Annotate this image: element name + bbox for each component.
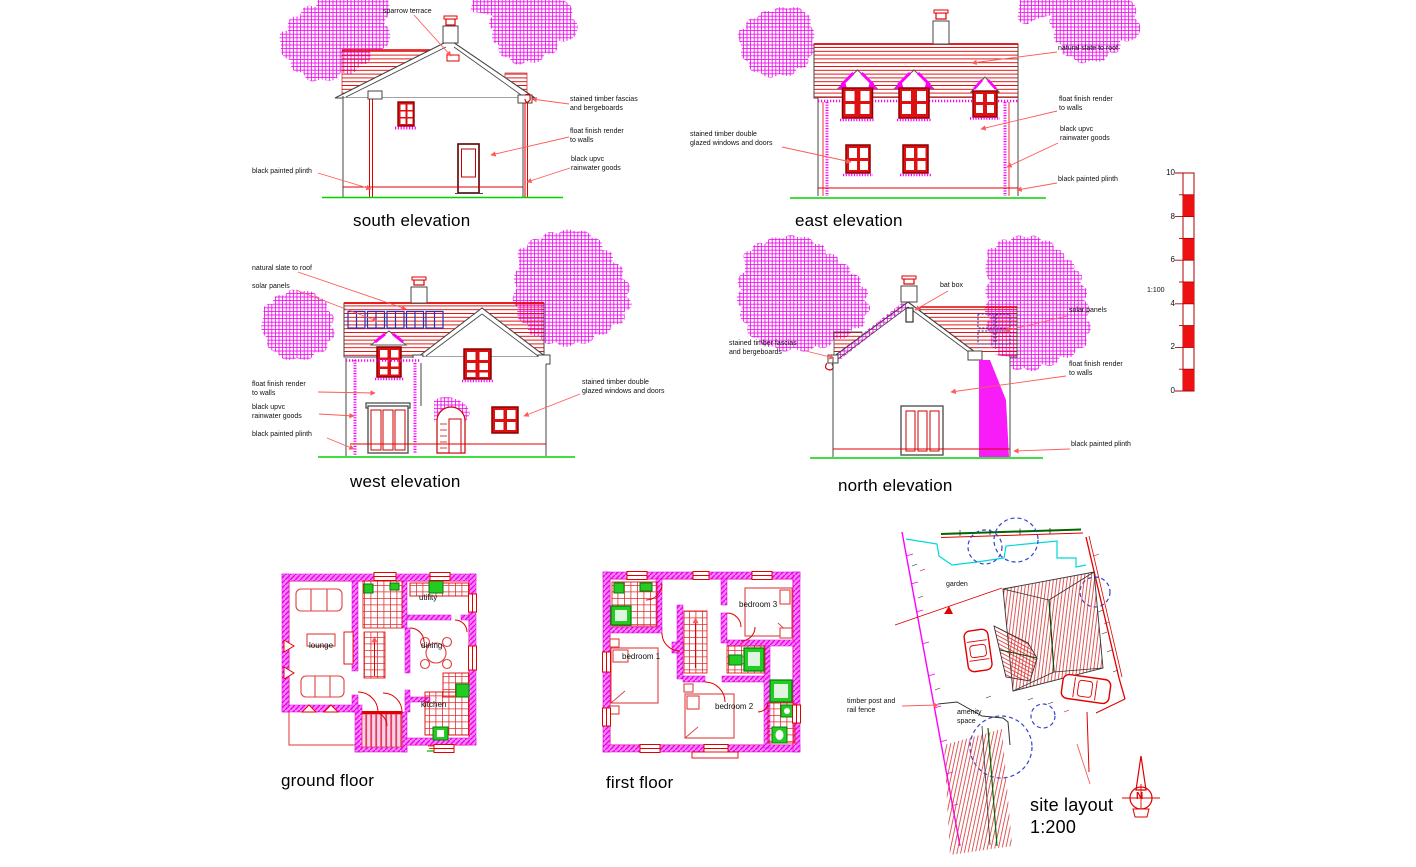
door [901,406,943,455]
south-elevation-drawing [280,0,578,198]
scale-tick-6: 6 [1157,255,1175,264]
door [455,144,483,194]
label-plinth: black painted plinth [1058,176,1118,185]
label-line: stained timber double [582,379,665,388]
basin [729,655,742,665]
wc-toilet [364,584,373,593]
label-line: float finish render [570,128,624,137]
room-label-bedroom2: bedroom 2 [715,702,753,712]
label-line: to walls [1069,370,1123,379]
label-line: rainwater goods [1060,135,1110,144]
label-line: black upvc [1060,126,1110,135]
label-sparrow-terrace: sparrow terrace [383,8,432,17]
scale-tick-0: 0 [1157,386,1175,395]
label-garden: garden [946,581,968,590]
label-line: float finish render [1059,96,1113,105]
ground-floor-title: ground floor [281,771,374,791]
label-rainwater: black upvc rainwater goods [571,156,621,174]
label-line: rail fence [847,707,895,716]
bat-box [906,308,913,322]
south-elevation-title: south elevation [353,211,470,231]
site-layout-drawing [895,518,1160,855]
architectural-drawing-sheet: sparrow terrace stained timber fascias a… [0,0,1416,867]
scale-tick-2: 2 [1157,342,1175,351]
west-elevation-title: west elevation [350,472,461,492]
north-arrow [1122,756,1160,817]
label-rainwater: black upvc rainwater goods [1060,126,1110,144]
label-render: float finish render to walls [252,381,306,399]
label-timber-fence: timber post and rail fence [847,698,895,716]
porch [362,714,402,747]
label-fascias: stained timber fascias and bergeboards [570,96,638,114]
window [843,145,873,175]
label-fascias: stained timber fascias and bergeboards [729,340,797,358]
window [462,349,493,381]
label-render: float finish render to walls [1059,96,1113,114]
label-line: to walls [252,390,306,399]
label-line: space [957,718,982,727]
tree-hatch [738,7,815,77]
scale-tick-4: 4 [1157,299,1175,308]
label-slate: natural slate to roof [1058,45,1118,54]
washer [429,581,443,593]
scale-bar [1175,173,1194,391]
label-line: to walls [570,137,624,146]
east-elevation-title: east elevation [795,211,903,231]
label-solar: solar panels [252,283,290,292]
amenity-hatch [944,729,1012,855]
label-line: rainwater goods [252,413,302,422]
label-line: amenity [957,709,982,718]
label-bat-box: bat box [940,282,963,291]
label-line: and bergeboards [570,105,638,114]
label-plinth: black painted plinth [252,431,312,440]
scale-tick-8: 8 [1157,212,1175,221]
site-layout-title: site layout [1030,795,1113,816]
wc-basin [390,583,399,590]
window [375,347,404,379]
label-line: black upvc [252,404,302,413]
ground-floor-plan [282,573,477,753]
toilet [614,583,624,593]
tree-hatch [470,0,578,65]
room-label-bedroom3: bedroom 3 [739,600,777,610]
label-windows: stained timber double glazed windows and… [582,379,665,397]
label-line: timber post and [847,698,895,707]
label-plinth: black painted plinth [252,168,312,177]
window [900,145,931,175]
label-line: stained timber double [690,131,773,140]
scale-ratio: 1:100 [1147,287,1165,294]
car [1061,674,1112,704]
window [395,102,417,128]
car [963,629,992,673]
cooker [456,684,469,697]
french-doors [366,403,410,453]
room-label-kitchen: kitchen [421,700,446,710]
window [492,407,518,433]
label-solar: solar panels [1069,307,1107,316]
north-arrow-letter: N [1136,791,1143,802]
room-label-lounge: lounge [309,641,333,651]
label-line: rainwater goods [571,165,621,174]
label-line: glazed windows and doors [690,140,773,149]
label-windows: stained timber double glazed windows and… [690,131,773,149]
north-elevation-title: north elevation [838,476,953,496]
first-floor-title: first floor [606,773,673,793]
scale-tick-10: 10 [1157,168,1175,177]
label-line: stained timber fascias [729,340,797,349]
services-line [906,539,1086,567]
label-render: float finish render to walls [570,128,624,146]
west-elevation-drawing [261,229,631,457]
label-line: stained timber fascias [570,96,638,105]
label-line: black upvc [571,156,621,165]
label-line: and bergeboards [729,349,797,358]
arched-door [434,397,470,453]
label-line: to walls [1059,105,1113,114]
basin [640,583,652,591]
label-render: float finish render to walls [1069,361,1123,379]
label-amenity-space: amenity space [957,709,982,727]
label-line: float finish render [1069,361,1123,370]
room-label-utility: utility [419,593,437,603]
site-house-roof [994,572,1103,691]
room-label-bedroom1: bedroom 1 [622,652,660,662]
site-layout-scale: 1:200 [1030,817,1076,838]
label-line: glazed windows and doors [582,388,665,397]
label-slate: natural slate to roof [252,265,312,274]
room-label-dining: dining [421,641,442,651]
label-plinth: black painted plinth [1071,441,1131,450]
label-line: float finish render [252,381,306,390]
label-rainwater: black upvc rainwater goods [252,404,302,422]
